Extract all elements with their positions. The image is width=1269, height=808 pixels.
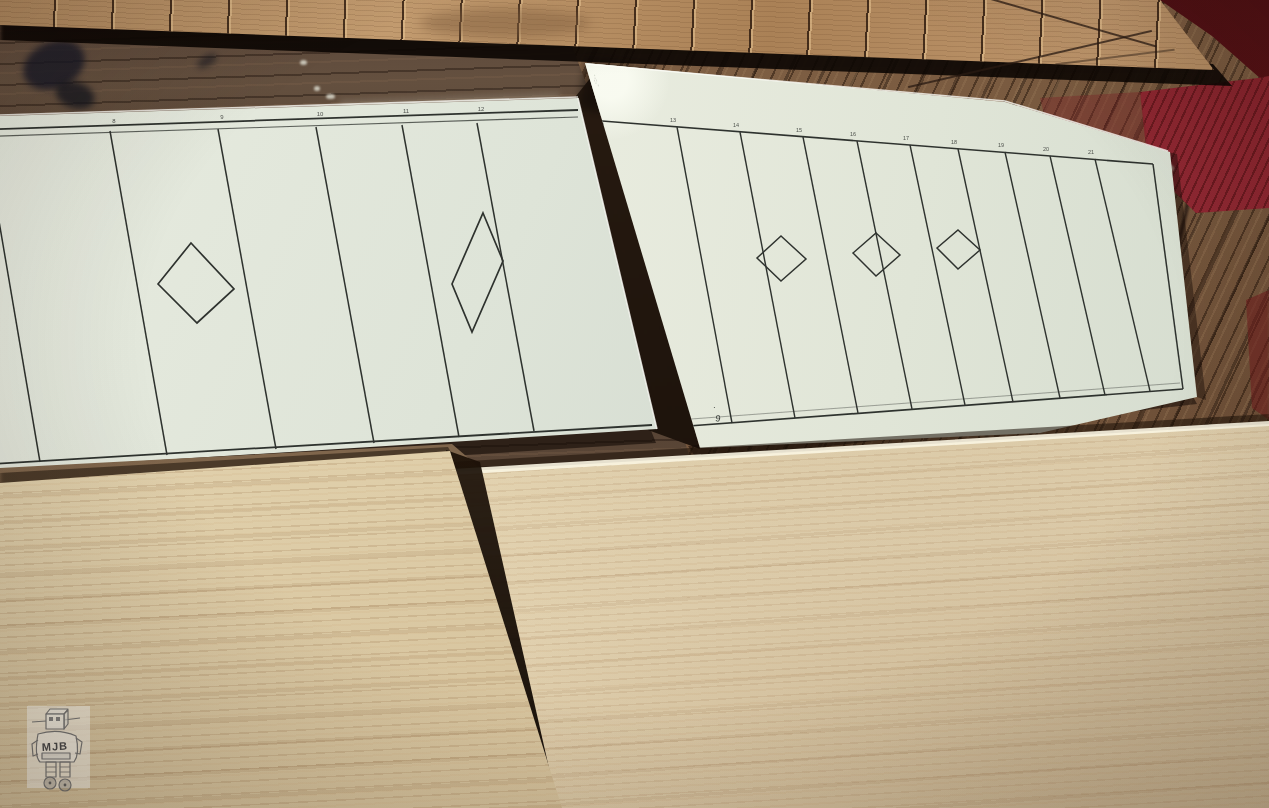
- panel-line: [958, 149, 1013, 402]
- tick-label: 19: [998, 142, 1004, 148]
- left-template-printing: 8 9 10 11 12: [0, 106, 652, 464]
- panel-line: [316, 127, 374, 443]
- frame-left-line: [602, 121, 662, 428]
- robot-head: [46, 714, 64, 729]
- panel-line: [803, 137, 858, 413]
- robot-belt-panel: [42, 753, 70, 759]
- robot-eye-right: [56, 717, 60, 721]
- robot-watermark: MJB: [26, 704, 92, 796]
- panel-line: [910, 145, 965, 405]
- robot-eye-left: [49, 717, 53, 721]
- frame-right-line: [1153, 164, 1183, 389]
- left-paper-right-edge: [578, 98, 657, 429]
- corner-mark: 9: [715, 413, 722, 424]
- watermark-initials: MJB: [41, 740, 68, 753]
- right-paper-top-edge: [587, 64, 1168, 151]
- right-template-printing: 13 14 15 16 17 18 19 20 21 ··:·˙ 9 ·: [592, 74, 1183, 428]
- paper-edge-highlights: [0, 64, 1168, 429]
- panel-line: [1095, 159, 1150, 391]
- tick-label: 17: [903, 135, 909, 141]
- panel-line: [218, 129, 276, 449]
- tick-label: 16: [850, 131, 856, 137]
- frame-top-line: [602, 121, 1153, 164]
- robot-leg-left: [46, 762, 56, 777]
- tick-label: 20: [1043, 146, 1049, 152]
- diamond-marker: [452, 213, 503, 332]
- tick-label: 13: [670, 117, 676, 123]
- panel-line: [1005, 152, 1060, 398]
- tick-label: 14: [733, 122, 739, 128]
- panel-line: [1050, 156, 1105, 395]
- robot-wheel-hub: [64, 784, 67, 787]
- panel-line: [110, 131, 167, 455]
- tick-label: 11: [403, 108, 410, 114]
- tick-label: 9: [220, 114, 224, 120]
- margin-marks: ··:·˙: [592, 74, 600, 88]
- tick-label: 10: [317, 111, 324, 117]
- corner-submark: ·: [713, 403, 716, 412]
- panel-line: [477, 123, 534, 431]
- tick-label: 18: [951, 139, 957, 145]
- tick-label: 15: [796, 127, 802, 133]
- frame-bottom-line-2: [664, 383, 1180, 421]
- panel-line: [677, 127, 732, 423]
- robot-wheel-hub: [49, 782, 52, 785]
- tick-label: 8: [112, 118, 116, 124]
- panel-line: [857, 141, 912, 409]
- station-tick-labels: 13 14 15 16 17 18 19 20 21: [670, 117, 1094, 155]
- robot-leg-right: [60, 762, 70, 777]
- robot-antenna-left: [32, 721, 46, 722]
- tick-label: 21: [1088, 149, 1094, 155]
- panel-line: [402, 125, 459, 437]
- panel-line: [0, 133, 40, 462]
- tick-label: 12: [478, 106, 485, 112]
- workbench-photo: 8 9 10 11 12: [0, 0, 1269, 808]
- diamond-marker: [937, 230, 980, 269]
- robot-leg-stripes: [46, 767, 70, 772]
- diamond-marker: [158, 243, 234, 323]
